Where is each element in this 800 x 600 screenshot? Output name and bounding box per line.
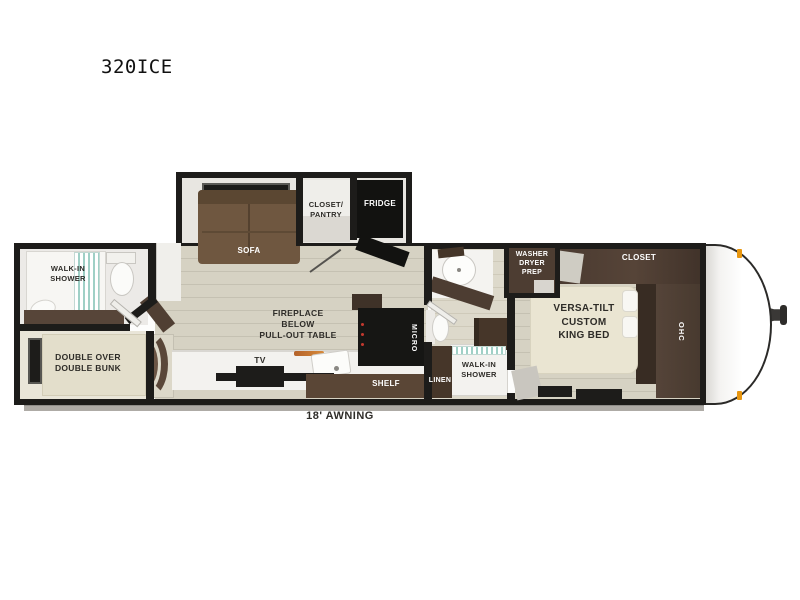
sofa-cushion-seam xyxy=(202,231,296,233)
linen-label: LINEN xyxy=(422,376,458,385)
bunk-label: DOUBLE OVER DOUBLE BUNK xyxy=(36,352,140,374)
hitch-ball xyxy=(780,305,787,325)
model-label: 320ICE xyxy=(101,58,173,77)
closet-pantry-label: CLOSET/ PANTRY xyxy=(299,200,353,220)
rear-toilet-bowl xyxy=(110,262,134,296)
closet-pantry-floor xyxy=(303,216,350,242)
washer-dryer-prep-label: WASHER DRYER PREP xyxy=(504,250,560,277)
marker-light-icon xyxy=(737,249,742,258)
sofa-label: SOFA xyxy=(198,246,300,256)
rear-shower-label: WALK-IN SHOWER xyxy=(24,264,112,284)
wall-bath-bedroom-stub xyxy=(507,393,515,405)
wall-living-bath-upper xyxy=(424,243,432,305)
rear-bath-wall-panel xyxy=(155,243,181,301)
front-cap xyxy=(698,244,772,405)
mid-shower-glass xyxy=(452,346,506,355)
wall-rear-bath xyxy=(148,243,156,299)
floor-mat xyxy=(538,386,572,397)
fireplace-label: FIREPLACE BELOW PULL-OUT TABLE xyxy=(222,308,374,341)
wall-bath-bunk xyxy=(14,324,130,331)
washer-dryer-prep-floor xyxy=(534,280,554,293)
burner-dot-icon xyxy=(361,343,364,346)
marker-light-icon xyxy=(737,391,742,400)
micro-label: MICRO xyxy=(402,312,418,364)
closet-label: CLOSET xyxy=(606,253,672,263)
shelf-label: SHELF xyxy=(352,379,420,389)
fridge-label: FRIDGE xyxy=(357,199,403,209)
bed-side-cabinet xyxy=(636,284,658,384)
sink-faucet-icon xyxy=(334,366,339,371)
tv-label: TV xyxy=(236,355,284,366)
tv xyxy=(236,366,284,387)
wall-living-bath-lower xyxy=(424,342,432,405)
floorplan-page: 320ICE WALK-IN SHOWER DOUBLE OVER DOUBLE… xyxy=(0,0,800,600)
ohc-label: OHC xyxy=(668,310,686,354)
sofa-backrest xyxy=(198,190,300,204)
mid-shower-label: WALK-IN SHOWER xyxy=(450,360,508,380)
floor-mat xyxy=(576,389,622,399)
sink-drain-icon xyxy=(457,268,461,272)
rear-shower-glass xyxy=(74,252,100,318)
king-bed-label: VERSA-TILT CUSTOM KING BED xyxy=(534,302,634,343)
wall-bunk-living xyxy=(146,331,154,405)
awning-label: 18' AWNING xyxy=(240,409,440,423)
